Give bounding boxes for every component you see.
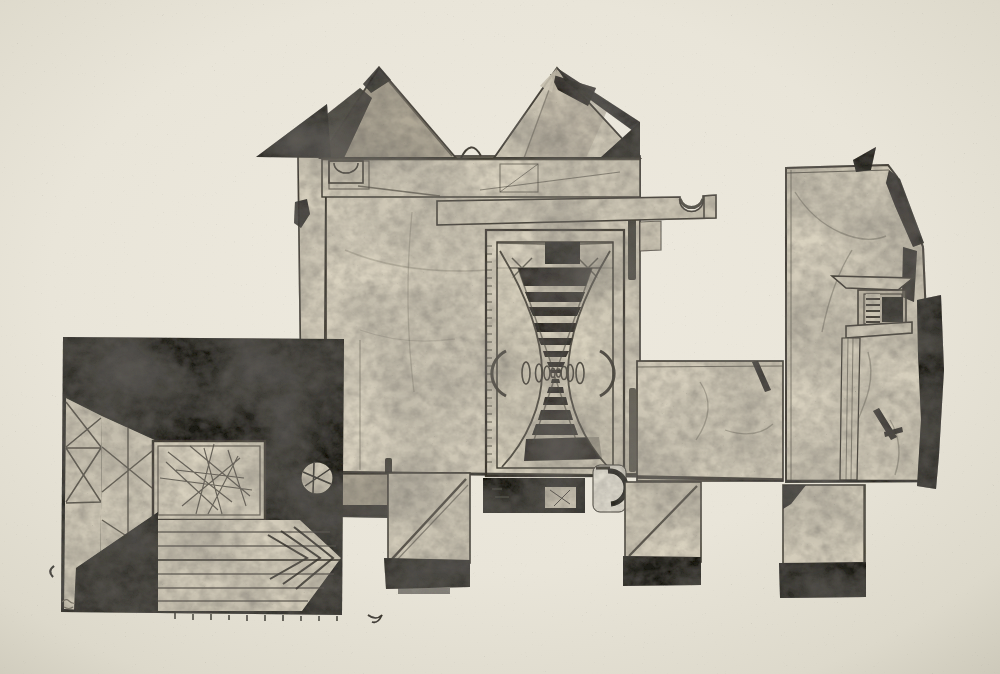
- artwork-canvas: Untitled — unfolded architectural struct…: [0, 0, 1000, 674]
- grain-overlay: [0, 0, 1000, 674]
- artwork-photo: Untitled — unfolded architectural struct…: [0, 0, 1000, 674]
